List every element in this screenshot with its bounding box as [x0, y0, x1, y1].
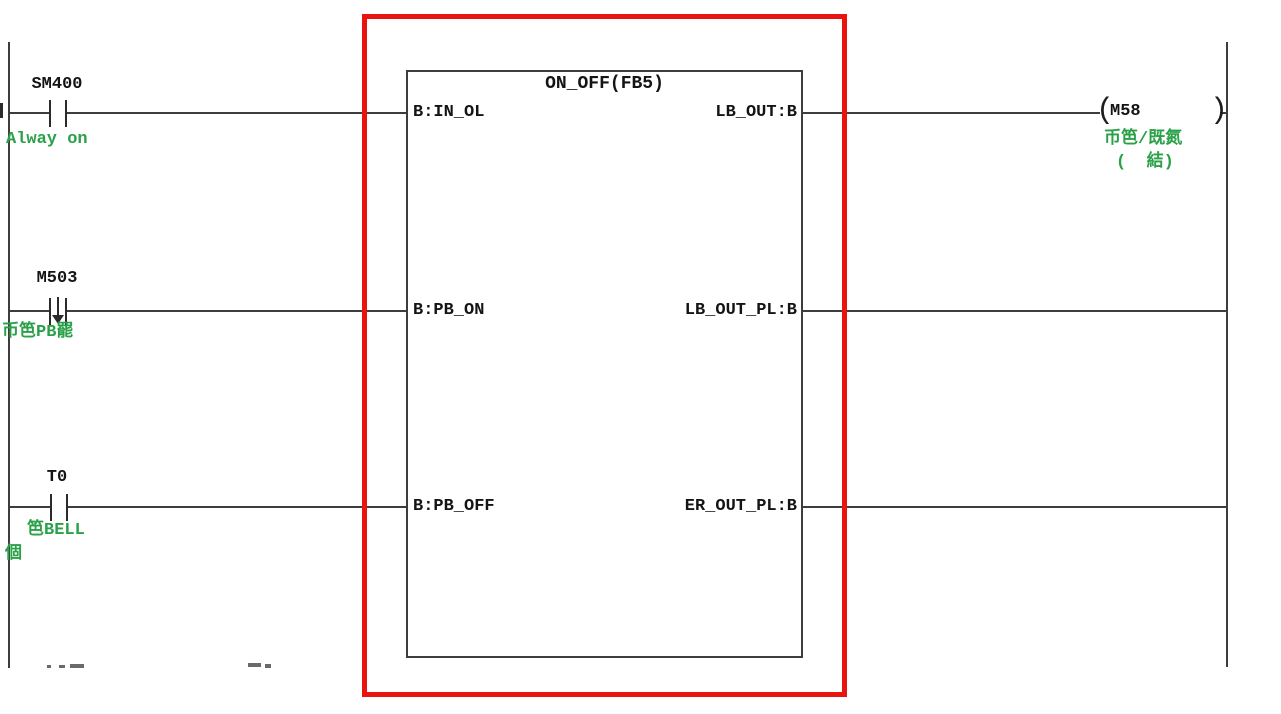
rung2-wire-to-block [67, 310, 406, 312]
rung3-wire-to-rail [803, 506, 1226, 508]
contact-bar-right [66, 494, 68, 521]
cropped-text-fragment [47, 665, 51, 668]
coil-device-label: M58 [1110, 103, 1141, 121]
fb-output-pin-lb-out-pl[interactable]: LB_OUT_PL:B [685, 301, 797, 321]
contact-bar-right [65, 298, 67, 325]
fb-output-pin-lb-out[interactable]: LB_OUT:B [715, 103, 797, 123]
coil-close-paren: ) [1210, 94, 1228, 128]
contact-bar-left [49, 100, 51, 127]
contact-comment: 笆BELL [27, 521, 85, 540]
coil-m58[interactable]: ( M58 ) [1096, 94, 1226, 134]
falling-edge-arrow-stem [57, 297, 59, 316]
coil-comment-line1: 币笆/既氮 [1104, 130, 1182, 149]
cropped-rung-number-fragment [0, 103, 3, 118]
rung2-wire-to-rail [803, 310, 1226, 312]
fb-input-pin-pb-on[interactable]: B:PB_ON [413, 301, 484, 321]
contact-bar-right [65, 100, 67, 127]
function-block[interactable] [406, 70, 803, 658]
fb-input-pin-in-ol[interactable]: B:IN_OL [413, 103, 484, 123]
contact-comment-line2: 個 [5, 545, 22, 564]
ladder-diagram-view: SM400 Alway on M503 币笆PB罷 T0 笆BELL 個 ON_… [0, 0, 1281, 714]
contact-comment: Alway on [6, 130, 88, 149]
contact-device-label: SM400 [24, 76, 90, 94]
cropped-text-fragment [265, 664, 271, 668]
fb-output-pin-er-out-pl[interactable]: ER_OUT_PL:B [685, 497, 797, 517]
function-block-title: ON_OFF(FB5) [406, 74, 803, 94]
contact-comment: 币笆PB罷 [2, 323, 73, 342]
cropped-text-fragment [70, 664, 84, 668]
rung1-wire-to-block [67, 112, 406, 114]
rung1-wire-to-coil [803, 112, 1100, 114]
right-power-rail [1226, 42, 1228, 667]
contact-device-label: M503 [24, 270, 90, 288]
rung3-wire-to-block [67, 506, 406, 508]
fb-input-pin-pb-off[interactable]: B:PB_OFF [413, 497, 495, 517]
contact-bar-left [50, 494, 52, 521]
contact-device-label: T0 [24, 469, 90, 487]
contact-bar-left [49, 298, 51, 325]
cropped-text-fragment [59, 665, 65, 668]
cropped-text-fragment [248, 663, 261, 667]
coil-comment-line2: ( 結) [1116, 153, 1174, 172]
